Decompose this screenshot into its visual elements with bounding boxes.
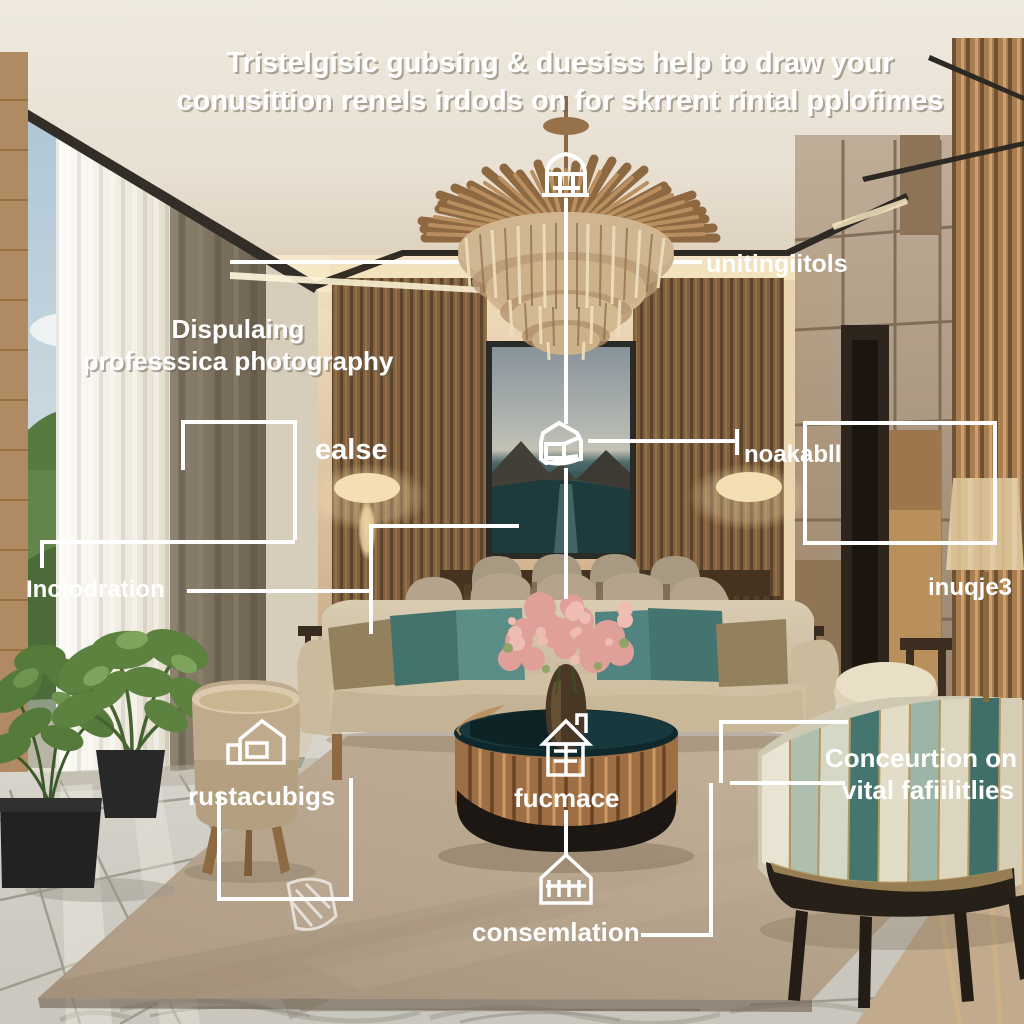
svg-text:Conceurtion on: Conceurtion on (825, 743, 1017, 773)
svg-text:ealse: ealse (315, 434, 388, 466)
svg-text:unitingiitols: unitingiitols (706, 250, 848, 278)
svg-text:professsica photography: professsica photography (83, 346, 394, 376)
svg-text:inuqje3: inuqje3 (928, 574, 1012, 601)
svg-text:Tristelgisic gubsing & duesiss: Tristelgisic gubsing & duesiss help to d… (226, 47, 893, 79)
svg-text:Dispulaing: Dispulaing (172, 314, 305, 344)
svg-text:conusittion renels irdods on: conusittion renels irdods on for skrrent… (177, 85, 944, 117)
svg-text:Inctodration: Inctodration (26, 576, 165, 603)
svg-text:rustacubigs: rustacubigs (188, 781, 335, 811)
svg-text:noakabll: noakabll (744, 441, 841, 468)
svg-text:fucmace: fucmace (514, 783, 620, 813)
svg-text:consemlation: consemlation (472, 917, 640, 947)
svg-text:vital fafiilitlies: vital fafiilitlies (842, 775, 1014, 805)
